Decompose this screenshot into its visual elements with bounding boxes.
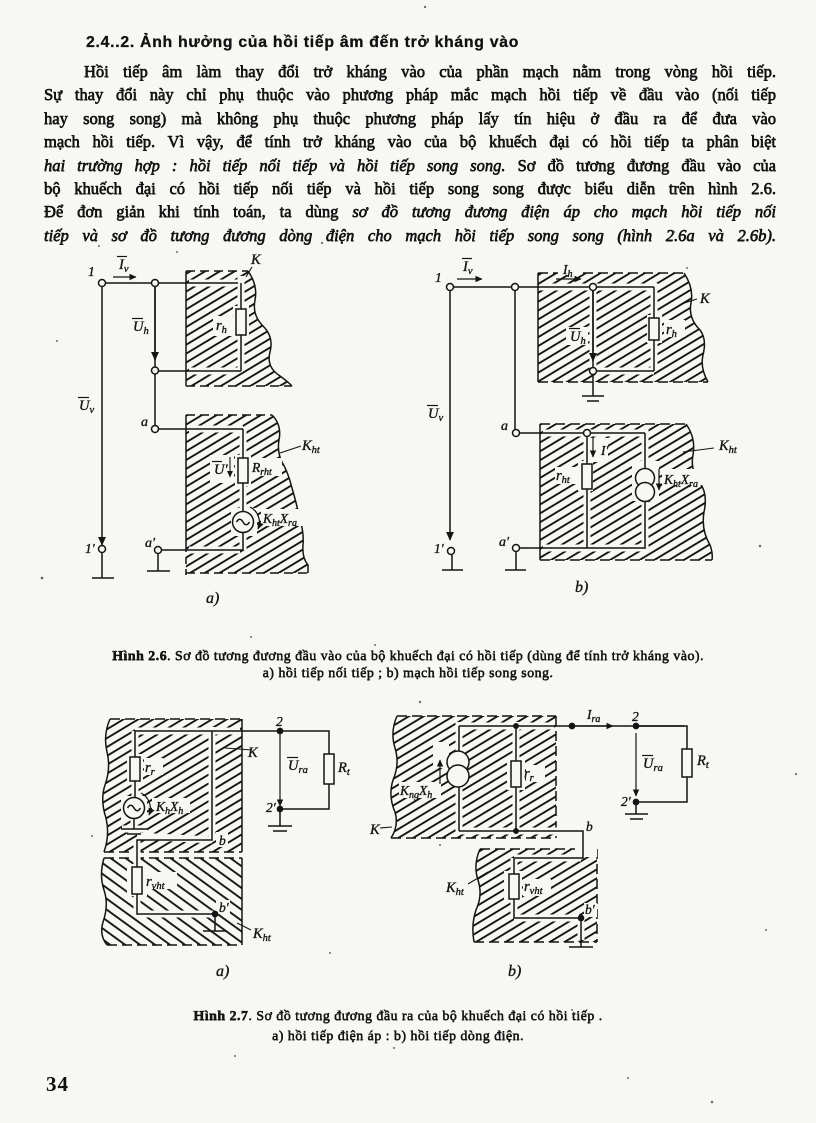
- svg-text:1: 1: [88, 264, 95, 279]
- svg-text:I′: I′: [600, 443, 609, 458]
- svg-text:Ura: Ura: [288, 758, 308, 776]
- svg-text:Iv: Iv: [118, 257, 129, 275]
- svg-text:Uv: Uv: [428, 406, 443, 424]
- svg-text:Iv: Iv: [462, 259, 473, 277]
- svg-text:b: b: [586, 819, 593, 834]
- svg-text:b): b): [575, 579, 588, 596]
- svg-text:b): b): [508, 963, 521, 980]
- svg-text:Ura: Ura: [643, 756, 663, 774]
- svg-text:Ira: Ira: [586, 707, 600, 725]
- svg-text:2: 2: [276, 714, 283, 729]
- svg-text:Kht: Kht: [718, 438, 738, 456]
- svg-text:U′: U′: [214, 462, 228, 478]
- svg-text:a′: a′: [499, 535, 510, 550]
- svg-text:2′: 2′: [266, 800, 277, 815]
- svg-text:a): a): [206, 590, 219, 607]
- svg-text:2: 2: [632, 709, 639, 724]
- svg-text:Kht: Kht: [301, 438, 321, 456]
- svg-text:Kht: Kht: [252, 926, 272, 944]
- svg-text:Rt: Rt: [337, 760, 351, 778]
- svg-text:Uv: Uv: [79, 398, 94, 416]
- svg-text:K: K: [250, 252, 262, 268]
- svg-text:a: a: [501, 419, 508, 434]
- svg-text:b′: b′: [219, 900, 230, 915]
- svg-text:a): a): [216, 963, 229, 980]
- svg-text:2′: 2′: [621, 794, 632, 809]
- svg-text:K: K: [369, 822, 381, 838]
- svg-text:a: a: [141, 415, 148, 430]
- svg-text:Kht: Kht: [445, 880, 465, 898]
- svg-text:K: K: [247, 745, 259, 761]
- svg-text:1′: 1′: [434, 541, 445, 556]
- svg-text:b′: b′: [585, 902, 596, 917]
- svg-text:1′: 1′: [85, 541, 96, 556]
- svg-text:Rt: Rt: [696, 753, 710, 771]
- svg-text:a′: a′: [145, 536, 156, 551]
- svg-text:Uh: Uh: [133, 319, 149, 337]
- svg-text:1: 1: [435, 270, 442, 285]
- svg-text:K: K: [699, 291, 711, 307]
- svg-text:b: b: [219, 833, 226, 848]
